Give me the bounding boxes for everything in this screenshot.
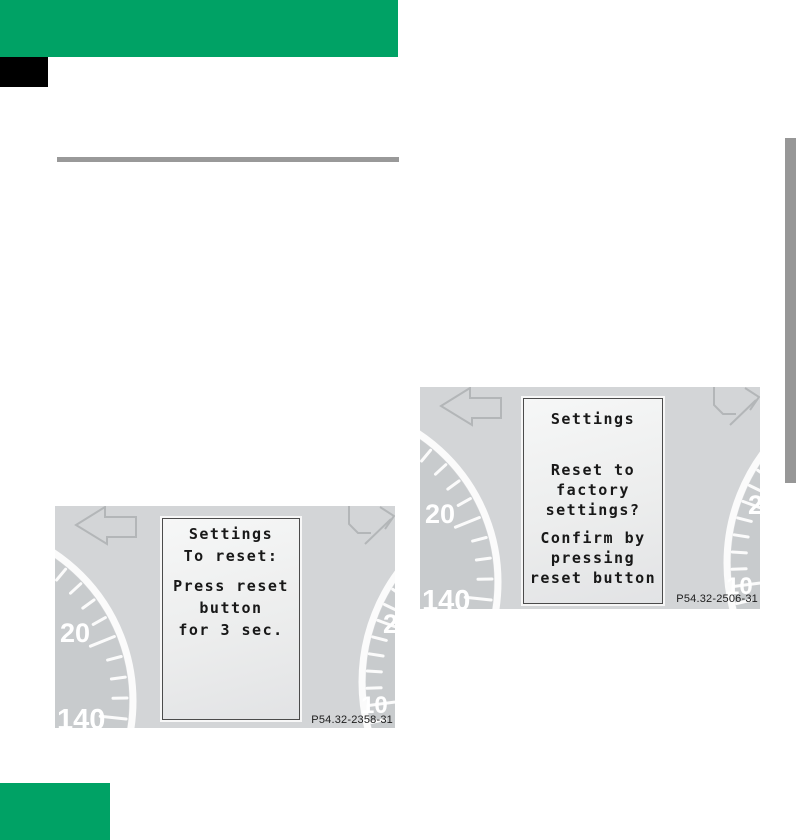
- chapter-color-bar: [0, 0, 398, 57]
- speedometer-gauge: 20 140: [55, 523, 133, 728]
- display-line: Reset to: [524, 460, 662, 480]
- display-line: Settings: [524, 409, 662, 429]
- speed-label-20: 20: [60, 618, 90, 648]
- figure-instrument-cluster-factory-reset: 20 140 2 10: [420, 387, 760, 609]
- display-line: pressing: [524, 548, 662, 568]
- speed-label-20: 20: [425, 499, 455, 529]
- display-line: settings?: [524, 500, 662, 520]
- section-divider-rule: [57, 157, 399, 162]
- display-line: factory: [524, 480, 662, 500]
- tach-label-2: 2: [748, 490, 760, 520]
- tachometer-gauge: 2 10: [726, 387, 760, 609]
- section-marker: [0, 57, 48, 87]
- figure-code: P54.32-2506-31: [676, 593, 758, 605]
- display-line: reset button: [524, 568, 662, 588]
- figure-code: P54.32-2358-31: [311, 714, 393, 726]
- tachometer-gauge: 2 10: [361, 506, 395, 728]
- display-line: button: [163, 597, 299, 619]
- right-arrow-icon: [349, 506, 394, 544]
- display-line: Settings: [163, 523, 299, 545]
- speedometer-gauge: 20 140: [420, 404, 498, 609]
- left-arrow-icon: [76, 507, 136, 544]
- trip-computer-display: Settings To reset: Press reset button fo…: [162, 518, 300, 720]
- speed-label-140: 140: [57, 704, 105, 728]
- tach-label-2: 2: [383, 609, 395, 639]
- figure-instrument-cluster-reset: 20 140 2 10: [55, 506, 395, 728]
- left-arrow-icon: [441, 388, 501, 425]
- page-edge-tab: [785, 138, 796, 483]
- speed-label-140: 140: [422, 585, 470, 609]
- right-arrow-icon: [714, 387, 759, 425]
- trip-computer-display: Settings Reset to factory settings? Conf…: [523, 398, 663, 604]
- footer-color-block: [0, 783, 110, 840]
- display-line: To reset:: [163, 545, 299, 567]
- manual-page: 20 140 2 10: [0, 0, 796, 840]
- display-line: Confirm by: [524, 528, 662, 548]
- display-line: for 3 sec.: [163, 619, 299, 641]
- display-line: Press reset: [163, 575, 299, 597]
